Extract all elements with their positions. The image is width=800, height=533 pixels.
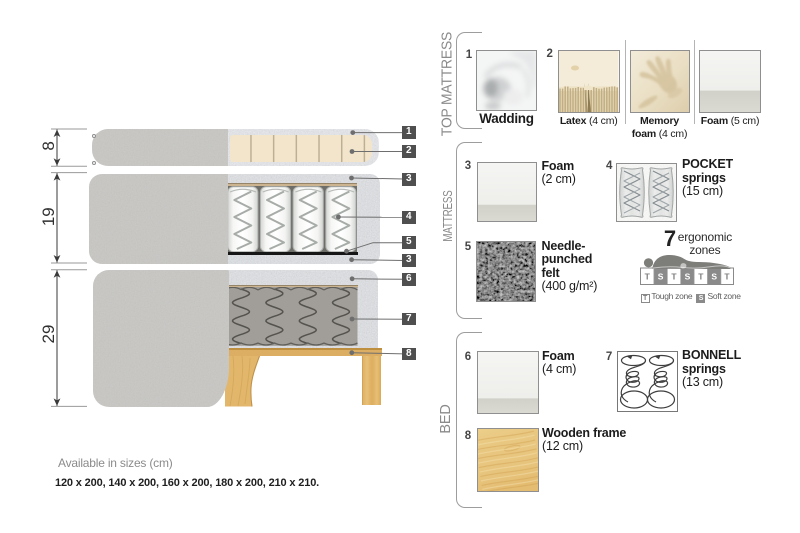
svg-text:T: T [724,271,730,281]
svg-text:S: S [711,271,717,281]
svg-text:T: T [671,271,677,281]
svg-text:8: 8 [39,141,58,150]
svg-text:19: 19 [39,207,58,226]
svg-text:S: S [684,271,690,281]
svg-text:S: S [657,271,663,281]
svg-text:T: T [698,271,704,281]
svg-text:29: 29 [39,325,58,344]
svg-text:T: T [644,271,650,281]
